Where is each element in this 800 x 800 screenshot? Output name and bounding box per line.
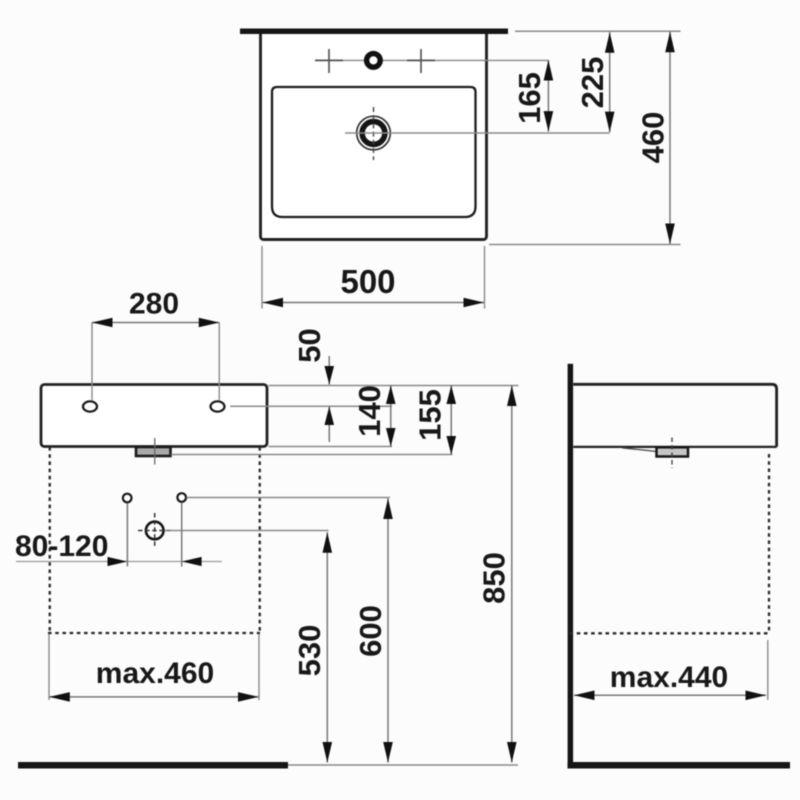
svg-text:165: 165 <box>512 72 547 124</box>
svg-text:530: 530 <box>292 625 327 677</box>
svg-text:155: 155 <box>413 389 448 441</box>
svg-text:460: 460 <box>636 112 671 164</box>
svg-text:280: 280 <box>129 288 179 321</box>
svg-text:500: 500 <box>340 263 395 300</box>
svg-text:850: 850 <box>477 552 512 604</box>
svg-text:50: 50 <box>292 328 327 362</box>
svg-text:max.440: max.440 <box>610 661 728 694</box>
svg-text:max.460: max.460 <box>96 657 214 690</box>
svg-text:140: 140 <box>352 385 387 437</box>
svg-text:225: 225 <box>575 57 610 109</box>
svg-text:600: 600 <box>353 605 388 657</box>
svg-text:80-120: 80-120 <box>15 530 108 563</box>
